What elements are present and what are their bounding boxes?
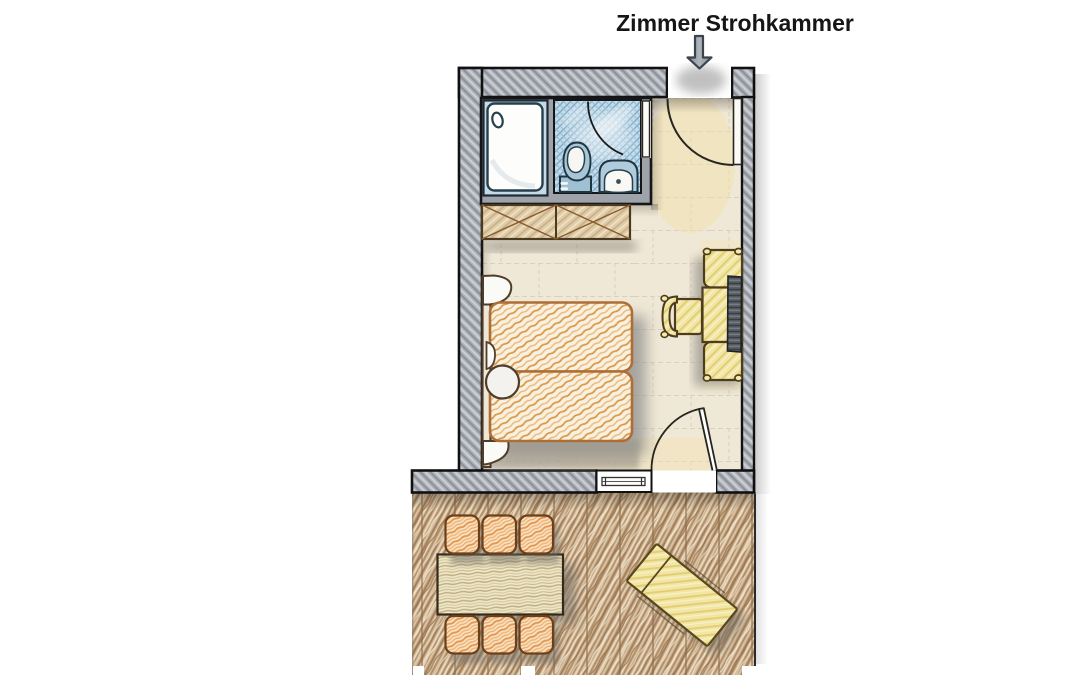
svg-text:Zimmer Strohkammer: Zimmer Strohkammer [616,10,854,36]
